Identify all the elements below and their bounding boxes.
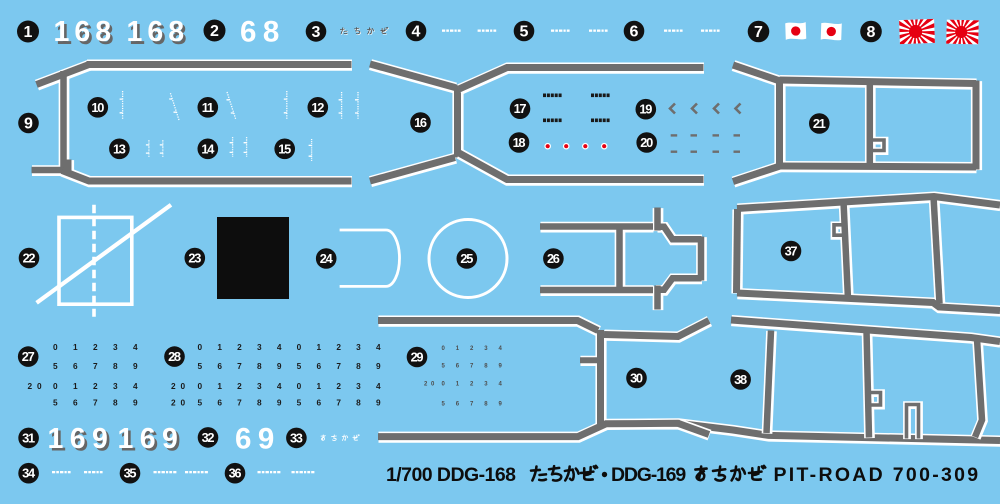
svg-text:56789: 56789 [442,364,513,370]
svg-text:25: 25 [460,251,473,266]
svg-text:1: 1 [24,24,33,41]
svg-text:17: 17 [514,101,527,116]
svg-text:2: 2 [210,23,219,40]
svg-text:1/700 DDG-168: 1/700 DDG-168 [386,464,516,486]
svg-text:01234: 01234 [442,382,513,388]
svg-text:21: 21 [813,116,826,131]
svg-text:169: 169 [118,423,185,455]
svg-text:16: 16 [414,115,427,130]
svg-text:26: 26 [547,251,560,266]
svg-text:30: 30 [630,371,643,386]
svg-text:56789: 56789 [53,361,153,371]
svg-text:6: 6 [630,24,639,41]
svg-text:23: 23 [188,251,201,266]
svg-text:35: 35 [124,466,137,481]
svg-text:5678956789: 5678956789 [198,398,396,408]
svg-text:69: 69 [235,422,281,455]
svg-text:168: 168 [127,16,190,48]
svg-text:20: 20 [640,135,653,150]
svg-text:169: 169 [48,423,115,455]
svg-text:8: 8 [867,24,876,41]
svg-text:22: 22 [23,251,36,266]
svg-text:DDG-169: DDG-169 [611,464,686,486]
svg-text:01234: 01234 [53,342,153,352]
svg-text:20: 20 [171,398,190,408]
svg-text:0123401234: 0123401234 [198,342,396,352]
svg-text:29: 29 [411,350,424,365]
svg-text:9: 9 [24,116,33,133]
svg-text:36: 36 [229,466,242,481]
svg-text:01234: 01234 [442,346,513,352]
svg-text:32: 32 [202,430,215,445]
svg-text:20: 20 [28,381,47,391]
svg-text:11: 11 [202,100,214,115]
svg-text:12: 12 [311,100,324,115]
svg-text:4: 4 [412,24,421,41]
svg-text:20: 20 [424,382,438,388]
svg-text:33: 33 [290,430,303,445]
svg-text:15: 15 [278,141,291,156]
svg-text:3: 3 [312,24,321,41]
svg-text:18: 18 [513,135,526,150]
svg-text:20: 20 [171,381,190,391]
svg-text:38: 38 [734,372,747,387]
svg-text:19: 19 [639,102,652,117]
svg-text:31: 31 [22,430,35,445]
svg-text:168: 168 [54,16,117,48]
svg-text:01234: 01234 [53,381,153,391]
svg-text:68: 68 [240,16,286,49]
svg-text:13: 13 [113,141,126,156]
svg-text:5: 5 [520,24,529,41]
svg-text:PIT-ROAD 700-309: PIT-ROAD 700-309 [774,464,981,486]
svg-text:37: 37 [785,244,798,259]
svg-text:5678956789: 5678956789 [198,361,396,371]
svg-text:0123401234: 0123401234 [198,381,396,391]
svg-text:28: 28 [168,349,181,364]
svg-text:27: 27 [22,349,35,364]
svg-text:56789: 56789 [53,398,153,408]
svg-text:56789: 56789 [442,402,513,408]
svg-text:7: 7 [754,24,763,41]
svg-text:10: 10 [91,100,104,115]
